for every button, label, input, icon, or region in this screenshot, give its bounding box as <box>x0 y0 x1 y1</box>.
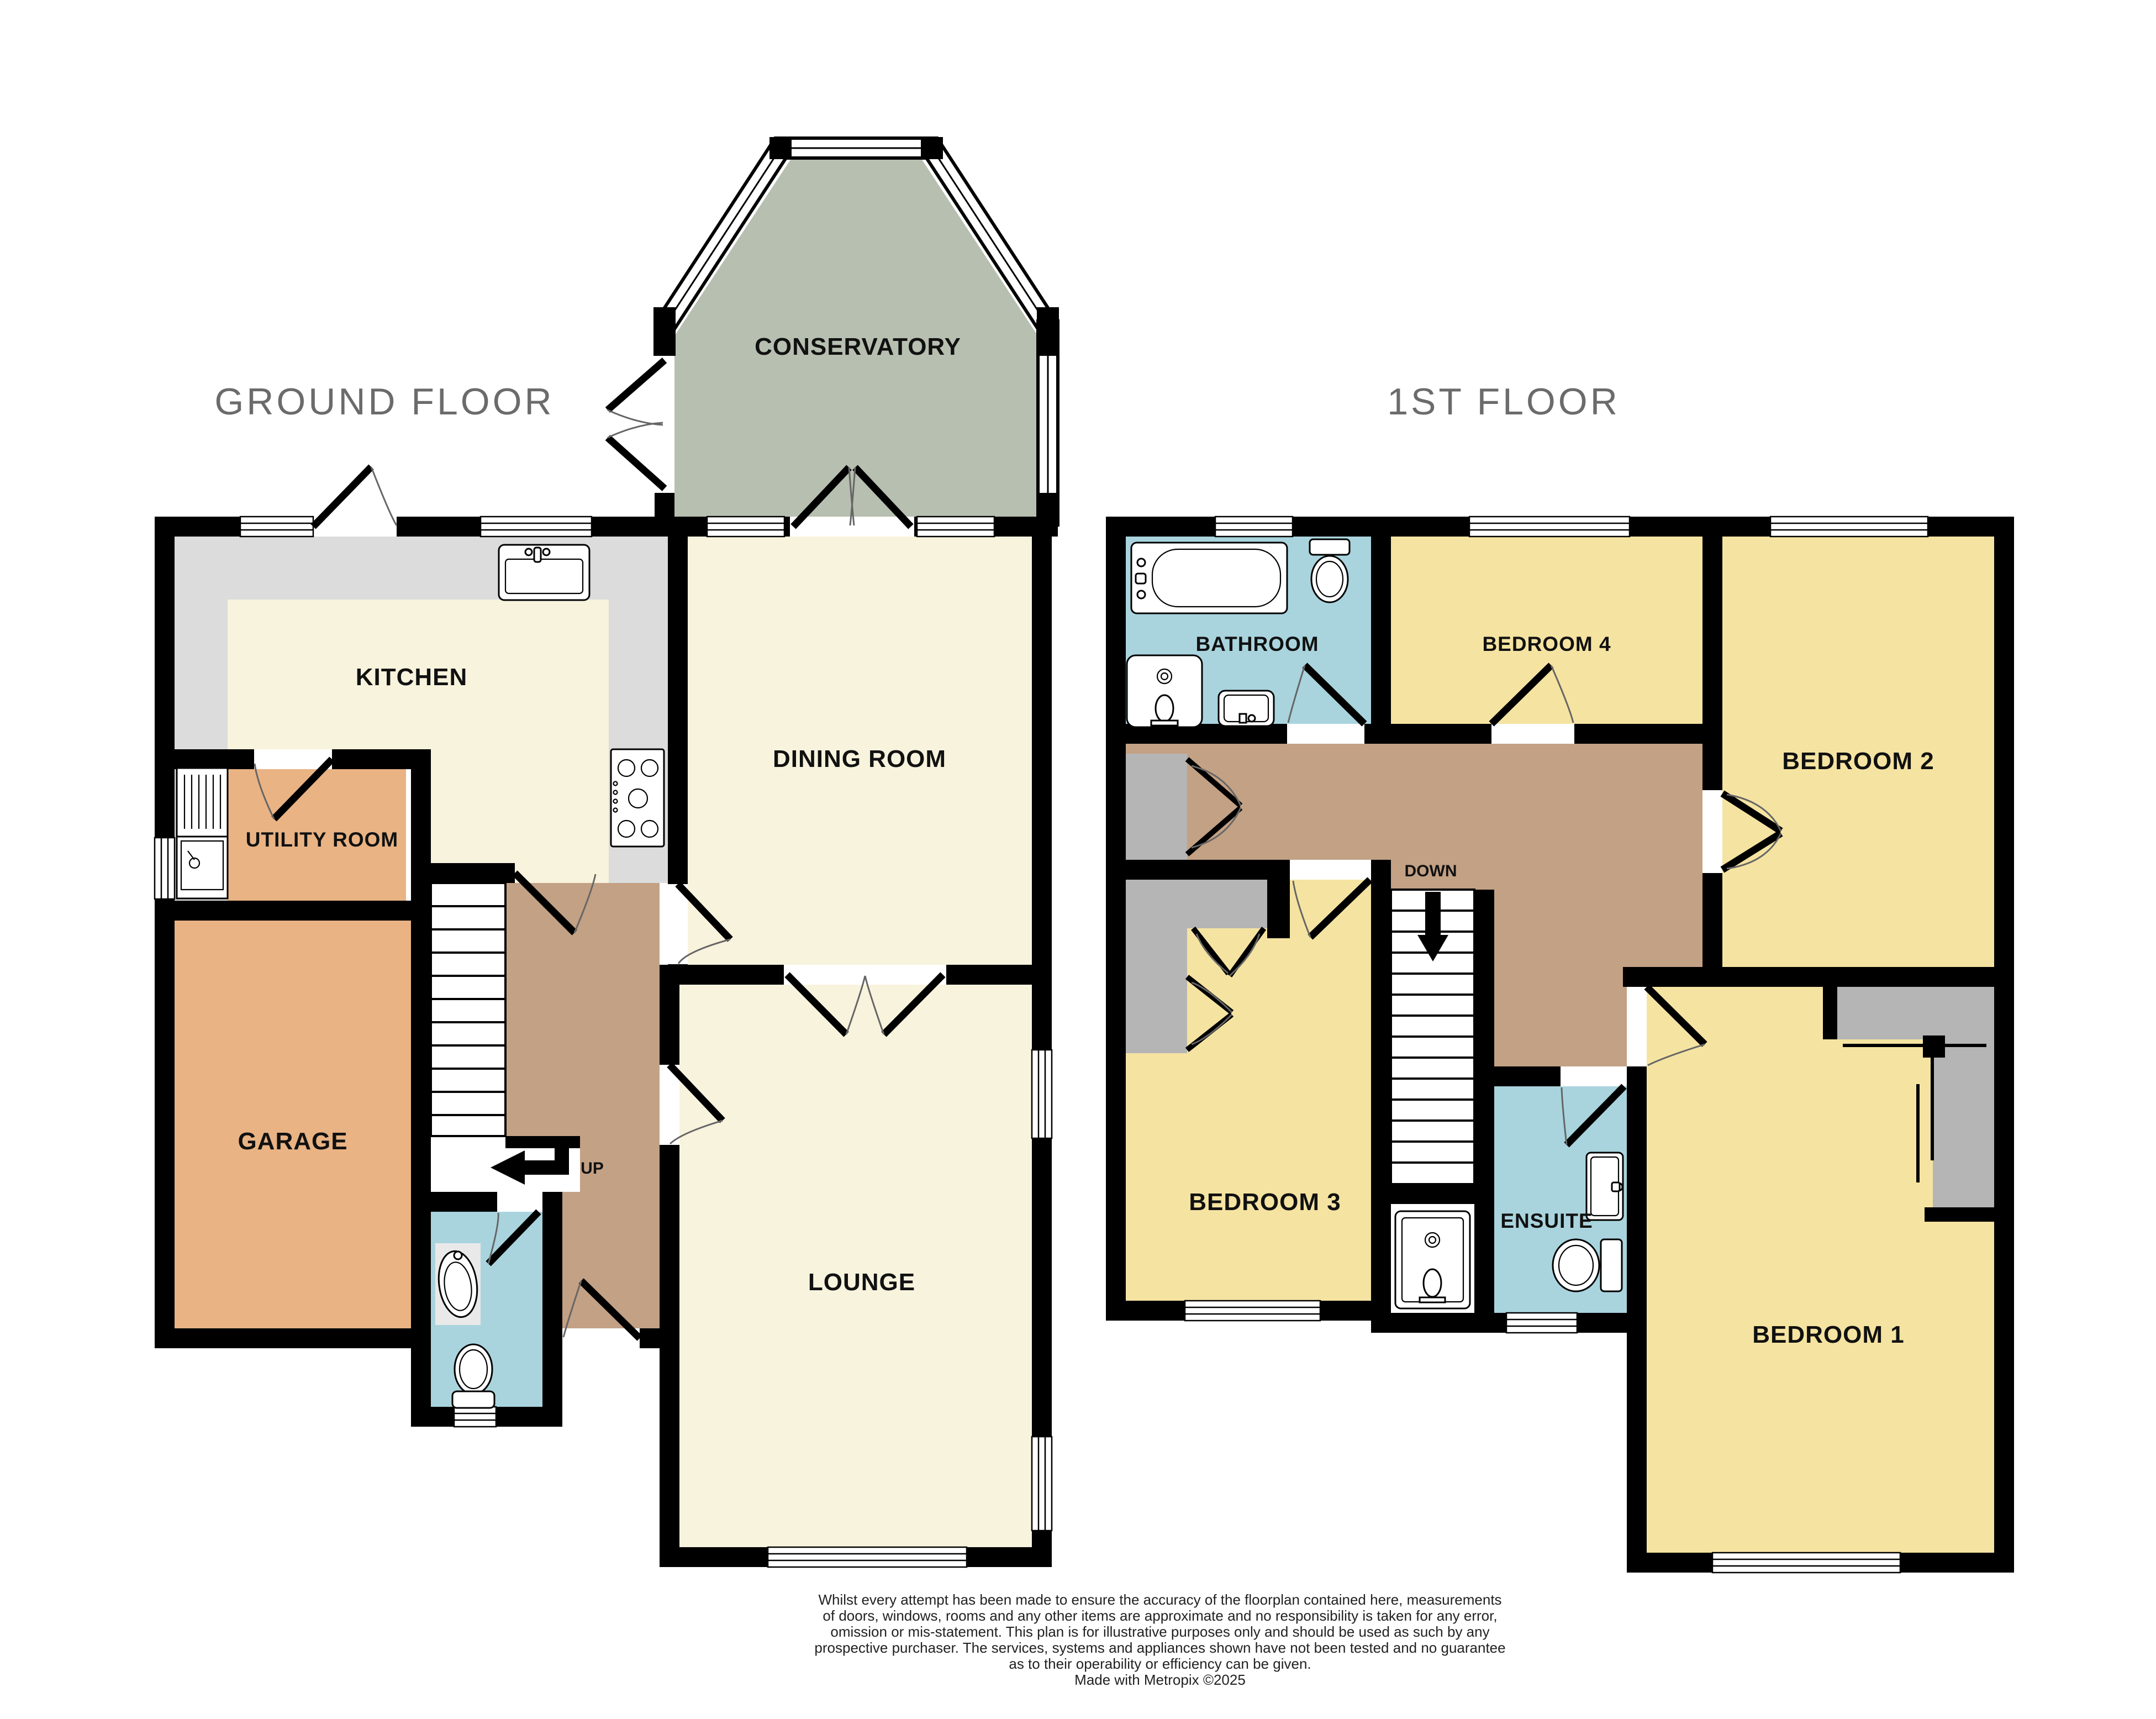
ensuite-label: ENSUITE <box>1500 1210 1593 1232</box>
lounge-window-east-2 <box>1032 1437 1052 1531</box>
disclaimer-line-3: omission or mis-statement. This plan is … <box>830 1623 1489 1640</box>
ensuite-toilet-icon <box>1553 1239 1622 1291</box>
lounge-window-south <box>768 1547 967 1567</box>
first-floor-plan: 1ST FLOOR <box>1106 381 2014 1573</box>
utility-window <box>155 838 175 899</box>
dining-window-2 <box>917 517 994 537</box>
first-floor-title: 1ST FLOOR <box>1387 381 1620 423</box>
disclaimer-line-4: prospective purchaser. The services, sys… <box>814 1639 1505 1656</box>
bedroom4-label: BEDROOM 4 <box>1482 633 1611 655</box>
landing-cupboard-floor <box>1126 754 1187 860</box>
room-bedroom4-floor <box>1391 537 1702 724</box>
kitchen-window-1 <box>240 517 313 537</box>
landing-floor-right <box>1474 860 1702 967</box>
garage-label: GARAGE <box>238 1128 347 1155</box>
disclaimer-credit: Made with Metropix ©2025 <box>1074 1671 1246 1688</box>
bedroom2-label: BEDROOM 2 <box>1782 748 1934 775</box>
disclaimer-line-2: of doors, windows, rooms and any other i… <box>823 1607 1497 1624</box>
kitchen-sink-icon <box>499 545 589 600</box>
room-lounge-floor <box>679 985 1032 1547</box>
disclaimer-line-5: as to their operability or efficiency ca… <box>1009 1655 1311 1672</box>
bathroom-window <box>1215 517 1293 537</box>
kitchen-label: KITCHEN <box>356 664 468 691</box>
hob-icon <box>611 749 664 847</box>
utility-sink-icon <box>177 768 228 898</box>
disclaimer: Whilst every attempt has been made to en… <box>814 1591 1505 1688</box>
bathroom-toilet-icon <box>1310 539 1350 602</box>
bathroom-cabinet-icon <box>1219 691 1274 726</box>
wc-basin-icon <box>435 1243 481 1325</box>
ground-floor-title: GROUND FLOOR <box>214 381 554 423</box>
bedroom3-window <box>1185 1301 1320 1321</box>
wc-toilet-icon <box>452 1344 494 1408</box>
bedroom2-window <box>1770 517 1928 537</box>
conservatory-garden-door <box>608 360 665 488</box>
dining-window-1 <box>707 517 784 537</box>
kitchen-counter-top <box>228 537 668 600</box>
bedroom3-label: BEDROOM 3 <box>1189 1189 1341 1216</box>
bedroom1-label: BEDROOM 1 <box>1752 1321 1904 1348</box>
bedroom4-window <box>1469 517 1630 537</box>
up-label: UP <box>581 1159 604 1177</box>
bathroom-basin-icon <box>1127 655 1202 727</box>
floorplan-image: GROUND FLOOR <box>0 0 2156 1719</box>
room-garage-floor <box>175 921 411 1328</box>
ensuite-window <box>1506 1313 1577 1333</box>
bath-icon <box>1131 543 1287 613</box>
disclaimer-line-1: Whilst every attempt has been made to en… <box>818 1591 1501 1608</box>
ground-floor-plan: GROUND FLOOR <box>155 137 1059 1567</box>
down-label: DOWN <box>1405 862 1457 880</box>
lounge-window-east-1 <box>1032 1050 1052 1138</box>
bedroom1-window <box>1712 1553 1900 1573</box>
dining-room-label: DINING ROOM <box>773 745 946 772</box>
ensuite-shower-icon <box>1395 1211 1470 1308</box>
kitchen-counter-left <box>175 537 228 749</box>
kitchen-window-2 <box>481 517 592 537</box>
bathroom-label: BATHROOM <box>1195 633 1319 655</box>
lounge-label: LOUNGE <box>808 1269 915 1296</box>
conservatory-label: CONSERVATORY <box>755 333 961 360</box>
utility-room-label: UTILITY ROOM <box>246 828 398 851</box>
landing-floor-top <box>1126 744 1702 860</box>
wc-window <box>454 1407 496 1427</box>
